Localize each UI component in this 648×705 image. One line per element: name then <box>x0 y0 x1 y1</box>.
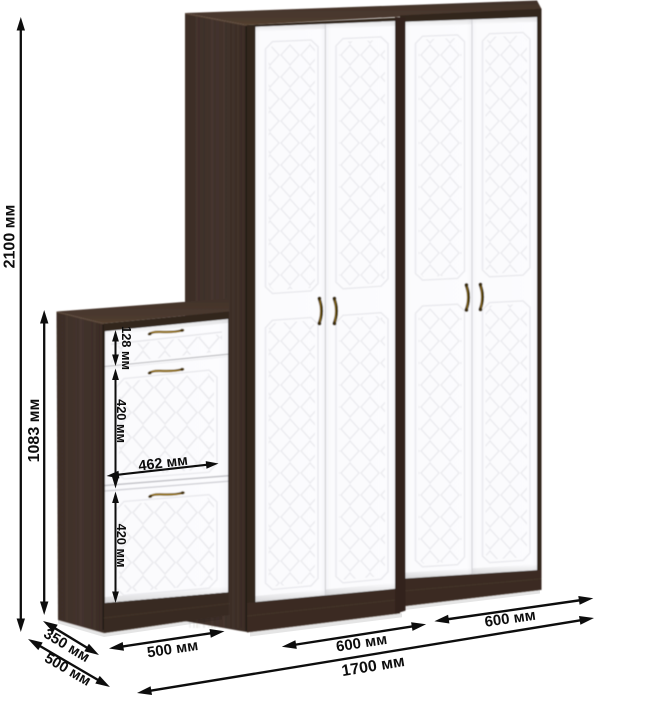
svg-text:128 мм: 128 мм <box>119 326 134 370</box>
svg-text:1083 мм: 1083 мм <box>26 399 43 463</box>
svg-text:420 мм: 420 мм <box>114 399 129 443</box>
svg-text:2100 мм: 2100 мм <box>2 205 19 269</box>
svg-text:420 мм: 420 мм <box>114 524 129 568</box>
